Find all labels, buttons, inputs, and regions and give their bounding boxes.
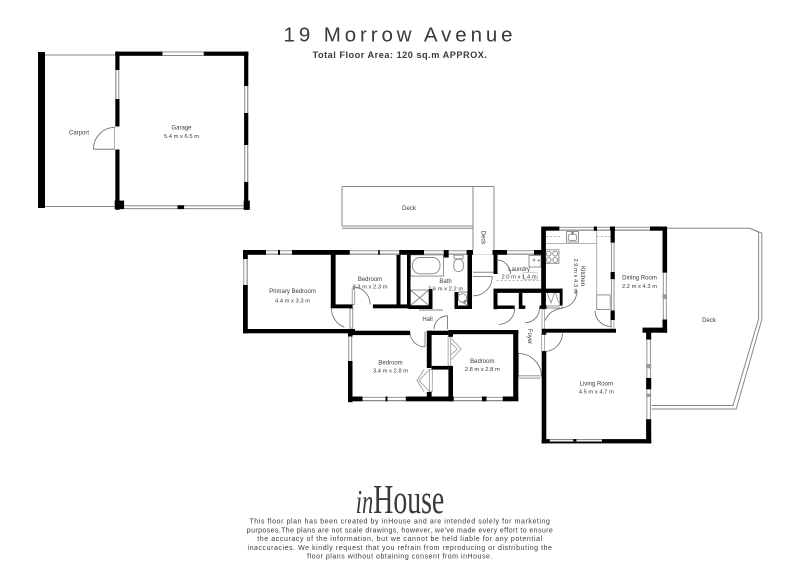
svg-text:5.4 m x 6.5 m: 5.4 m x 6.5 m xyxy=(164,134,199,140)
svg-text:Bath: Bath xyxy=(439,279,451,285)
svg-text:Foyer: Foyer xyxy=(526,329,532,344)
svg-text:the accuracy of the informatio: the accuracy of the information, but we … xyxy=(257,536,543,543)
svg-text:Bedroom: Bedroom xyxy=(378,361,402,367)
svg-text:19 Morrow Avenue: 19 Morrow Avenue xyxy=(284,24,517,47)
svg-text:2.9 m x 4.3 m: 2.9 m x 4.3 m xyxy=(572,258,578,293)
svg-text:Primary Bedroom: Primary Bedroom xyxy=(269,289,316,295)
svg-text:Kitchen: Kitchen xyxy=(579,266,585,286)
svg-text:Garage: Garage xyxy=(171,126,192,132)
svg-text:This floor plan has been creat: This floor plan has been created by inHo… xyxy=(249,519,550,526)
svg-text:2.6 m x 2.2 m: 2.6 m x 2.2 m xyxy=(428,287,463,293)
svg-text:Total Floor Area: 120 sq.m APP: Total Floor Area: 120 sq.m APPROX. xyxy=(313,50,488,60)
svg-text:Deck: Deck xyxy=(480,231,486,246)
svg-text:Bedroom: Bedroom xyxy=(358,277,382,283)
svg-text:Deck: Deck xyxy=(402,206,417,212)
svg-text:Living Room: Living Room xyxy=(580,381,613,387)
svg-text:3.4 m x 2.8 m: 3.4 m x 2.8 m xyxy=(373,369,408,375)
svg-text:3.3 m x 2.3 m: 3.3 m x 2.3 m xyxy=(352,285,387,291)
svg-text:inaccuracies. We kindly reques: inaccuracies. We kindly request that you… xyxy=(247,545,552,552)
svg-text:4.5 m x 4.7 m: 4.5 m x 4.7 m xyxy=(579,389,614,395)
svg-text:Hall: Hall xyxy=(422,317,432,323)
svg-text:2.0 m x 1.4 m: 2.0 m x 1.4 m xyxy=(501,275,536,281)
svg-text:2.2 m x 4.3 m: 2.2 m x 4.3 m xyxy=(622,284,657,290)
svg-text:2.8 m x 2.8 m: 2.8 m x 2.8 m xyxy=(465,367,500,373)
svg-text:Deck: Deck xyxy=(702,318,717,324)
svg-text:floor plans without obtaining: floor plans without obtaining consent fr… xyxy=(307,554,493,561)
svg-text:4.4 m x 3.3 m: 4.4 m x 3.3 m xyxy=(275,299,310,305)
svg-text:purposes.The plans are not sca: purposes.The plans are not scale drawing… xyxy=(247,527,553,534)
svg-text:Carport: Carport xyxy=(69,131,89,137)
svg-text:Bedroom: Bedroom xyxy=(470,359,494,365)
svg-text:Dining Room: Dining Room xyxy=(622,276,657,282)
